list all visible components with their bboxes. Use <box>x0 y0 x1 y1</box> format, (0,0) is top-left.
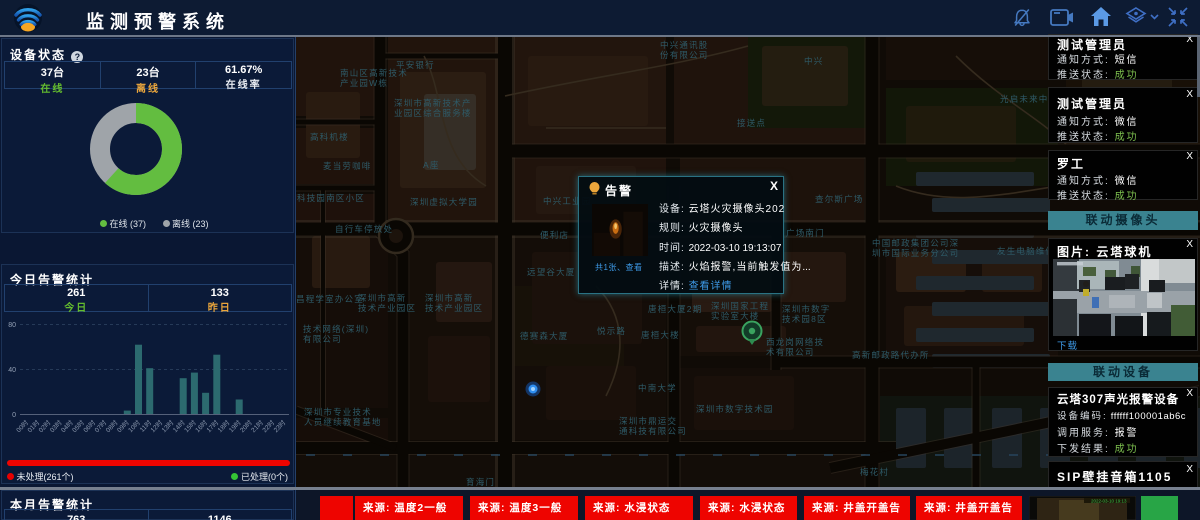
svg-text:2022-03-10 19:13: 2022-03-10 19:13 <box>1091 499 1127 504</box>
svg-text:技术产业园区: 技术产业园区 <box>425 303 483 313</box>
svg-text:技术网络(深圳): 技术网络(深圳) <box>303 324 369 334</box>
svg-text:份有限公司: 份有限公司 <box>660 50 709 60</box>
svg-text:40: 40 <box>8 367 16 374</box>
svg-text:有限公司: 有限公司 <box>303 334 342 344</box>
svg-text:悦示路: 悦示路 <box>597 326 626 336</box>
svg-text:梅花村: 梅花村 <box>860 467 889 477</box>
svg-text:深圳市高新: 深圳市高新 <box>358 293 407 303</box>
svg-text:唐桓大厦2期: 唐桓大厦2期 <box>648 304 702 314</box>
svg-text:深圳市数字: 深圳市数字 <box>782 304 831 314</box>
svg-text:深圳虚拟大学园: 深圳虚拟大学园 <box>410 197 478 207</box>
svg-text:A座: A座 <box>423 160 440 170</box>
svg-text:查尔斯广场: 查尔斯广场 <box>815 194 864 204</box>
svg-text:中南大学: 中南大学 <box>638 383 677 393</box>
svg-text:西龙岗网络技: 西龙岗网络技 <box>766 337 824 347</box>
svg-text:中兴: 中兴 <box>804 56 823 66</box>
svg-text:麦当劳咖啡: 麦当劳咖啡 <box>323 161 372 171</box>
svg-text:平安银行: 平安银行 <box>396 60 435 70</box>
svg-text:0: 0 <box>12 412 16 419</box>
svg-text:育海门: 育海门 <box>466 477 495 487</box>
svg-text:产业园W栋: 产业园W栋 <box>340 78 388 88</box>
svg-text:深圳市专业技术: 深圳市专业技术 <box>304 407 372 417</box>
svg-text:中兴通讯股: 中兴通讯股 <box>660 40 709 50</box>
svg-text:深圳市高新: 深圳市高新 <box>425 293 474 303</box>
svg-text:唐桓大楼: 唐桓大楼 <box>641 330 680 340</box>
svg-text:科技园南区小区: 科技园南区小区 <box>297 193 365 203</box>
svg-text:友生电脑维修: 友生电脑维修 <box>997 246 1055 256</box>
svg-text:技术园8区: 技术园8区 <box>782 314 827 324</box>
svg-text:深圳国家工程: 深圳国家工程 <box>711 301 769 311</box>
svg-text:人员继续教育基地: 人员继续教育基地 <box>304 417 382 427</box>
svg-text:自行车停放处: 自行车停放处 <box>335 224 393 234</box>
svg-text:业园区综合服务楼: 业园区综合服务楼 <box>394 108 472 118</box>
svg-text:便利店: 便利店 <box>540 230 569 240</box>
svg-text:接送点: 接送点 <box>737 118 766 128</box>
svg-text:高新邮政路代办所: 高新邮政路代办所 <box>852 350 930 360</box>
svg-text:圳市国际业务分公司: 圳市国际业务分公司 <box>872 248 959 258</box>
svg-text:德赛森大厦: 德赛森大厦 <box>520 331 569 341</box>
svg-text:远望谷大厦: 远望谷大厦 <box>527 267 576 277</box>
svg-text:中国邮政集团公司深: 中国邮政集团公司深 <box>872 238 959 248</box>
svg-text:实验室大楼: 实验室大楼 <box>711 311 760 321</box>
svg-text:深圳市数字技术园: 深圳市数字技术园 <box>696 404 774 414</box>
svg-text:深圳市高新技术产: 深圳市高新技术产 <box>394 98 472 108</box>
svg-text:高科机楼: 高科机楼 <box>310 132 349 142</box>
svg-text:深圳市鼎运交: 深圳市鼎运交 <box>619 416 677 426</box>
svg-text:术有限公司: 术有限公司 <box>766 347 815 357</box>
svg-text:技术产业园区: 技术产业园区 <box>358 303 416 313</box>
svg-text:80: 80 <box>8 322 16 329</box>
svg-text:通科技有限公司: 通科技有限公司 <box>619 426 687 436</box>
svg-text:昌程学室办公室: 昌程学室办公室 <box>296 294 364 304</box>
